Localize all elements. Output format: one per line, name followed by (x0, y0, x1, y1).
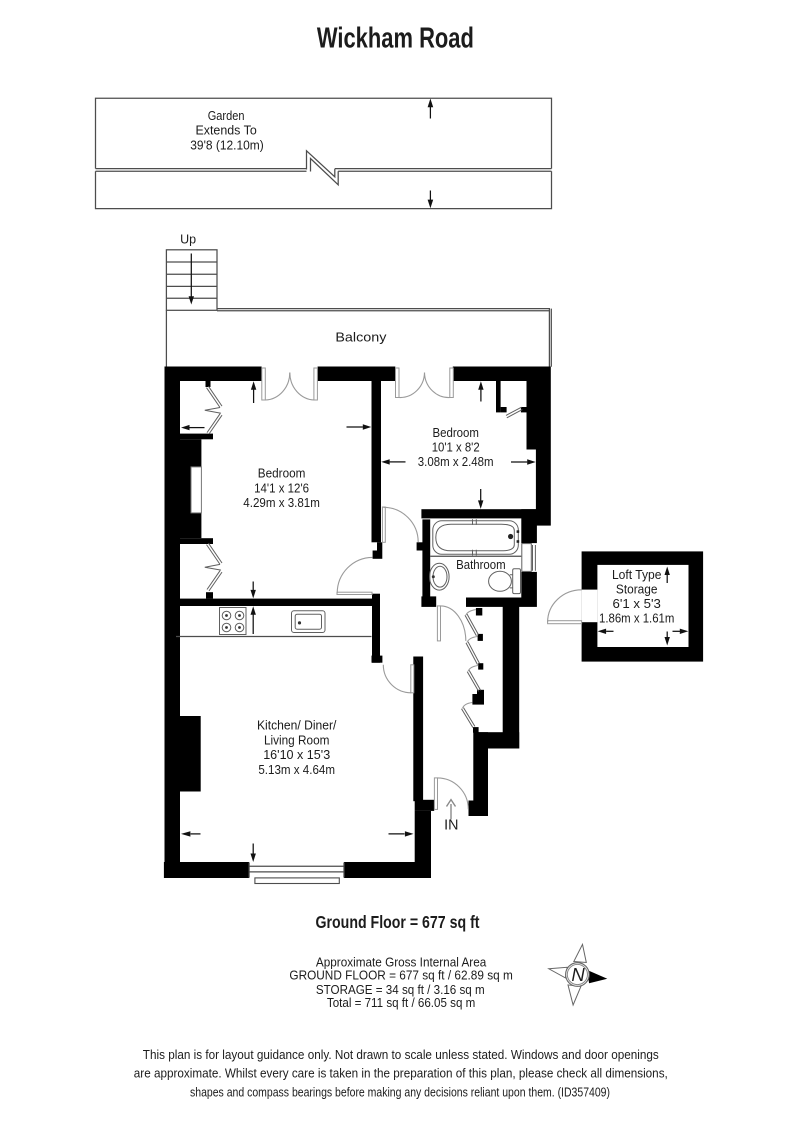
svg-text:Living Room: Living Room (264, 733, 330, 747)
svg-text:This plan is for layout guidan: This plan is for layout guidance only. N… (143, 1047, 659, 1062)
svg-text:4.29m x 3.81m: 4.29m x 3.81m (243, 496, 320, 510)
svg-text:Balcony: Balcony (335, 331, 387, 345)
svg-text:10'1 x 8'2: 10'1 x 8'2 (432, 441, 480, 455)
svg-text:6'1 x 5'3: 6'1 x 5'3 (613, 597, 661, 611)
svg-text:39'8 (12.10m): 39'8 (12.10m) (190, 139, 264, 153)
svg-text:Loft Type: Loft Type (612, 568, 662, 582)
svg-text:N: N (571, 964, 585, 985)
svg-text:Garden: Garden (208, 109, 245, 123)
svg-text:16'10 x 15'3: 16'10 x 15'3 (263, 748, 330, 762)
svg-text:3.08m x 2.48m: 3.08m x 2.48m (418, 455, 494, 469)
svg-text:shapes and compass bearings be: shapes and compass bearings before makin… (190, 1084, 610, 1099)
svg-text:Bathroom: Bathroom (456, 558, 506, 572)
svg-text:Bedroom: Bedroom (258, 467, 306, 481)
svg-text:Kitchen/ Diner/: Kitchen/ Diner/ (257, 719, 337, 733)
svg-text:are approximate. Whilst every: are approximate. Whilst every care is ta… (134, 1066, 668, 1081)
svg-text:5.13m x 4.64m: 5.13m x 4.64m (258, 763, 335, 777)
svg-text:Up: Up (180, 233, 196, 247)
svg-text:Wickham Road: Wickham Road (317, 23, 474, 55)
svg-text:GROUND FLOOR = 677 sq ft / 62.: GROUND FLOOR = 677 sq ft / 62.89 sq m (289, 968, 512, 983)
svg-text:Total = 711 sq ft / 66.05 sq m: Total = 711 sq ft / 66.05 sq m (327, 995, 475, 1010)
svg-text:14'1 x 12'6: 14'1 x 12'6 (254, 481, 309, 495)
svg-text:1.86m x 1.61m: 1.86m x 1.61m (599, 612, 674, 626)
svg-text:Extends To: Extends To (195, 124, 256, 138)
svg-text:Storage: Storage (616, 583, 658, 597)
svg-text:Bedroom: Bedroom (432, 426, 479, 440)
svg-text:Ground Floor = 677 sq ft: Ground Floor = 677 sq ft (316, 912, 480, 932)
